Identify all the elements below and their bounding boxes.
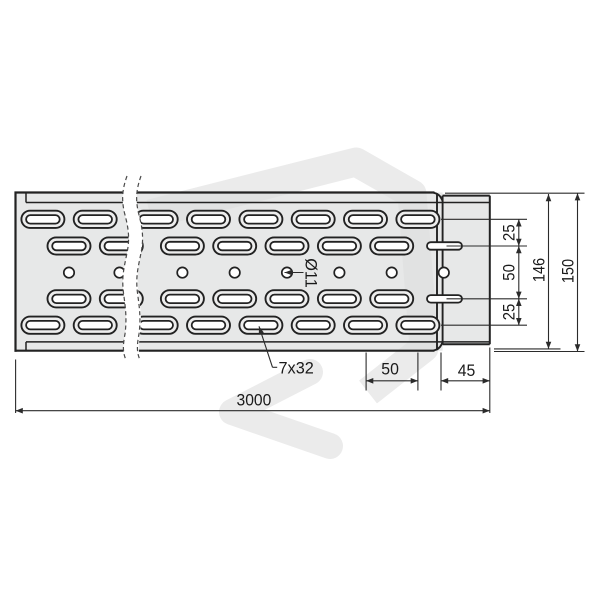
svg-text:3000: 3000	[237, 391, 272, 409]
svg-text:150: 150	[560, 259, 578, 283]
svg-text:7x32: 7x32	[279, 360, 314, 378]
svg-text:45: 45	[458, 362, 476, 380]
svg-text:146: 146	[530, 258, 548, 282]
svg-text:Ø11: Ø11	[302, 258, 320, 288]
svg-text:50: 50	[381, 360, 399, 378]
svg-text:25: 25	[501, 304, 519, 321]
svg-text:50: 50	[501, 264, 519, 281]
svg-text:25: 25	[501, 224, 519, 241]
